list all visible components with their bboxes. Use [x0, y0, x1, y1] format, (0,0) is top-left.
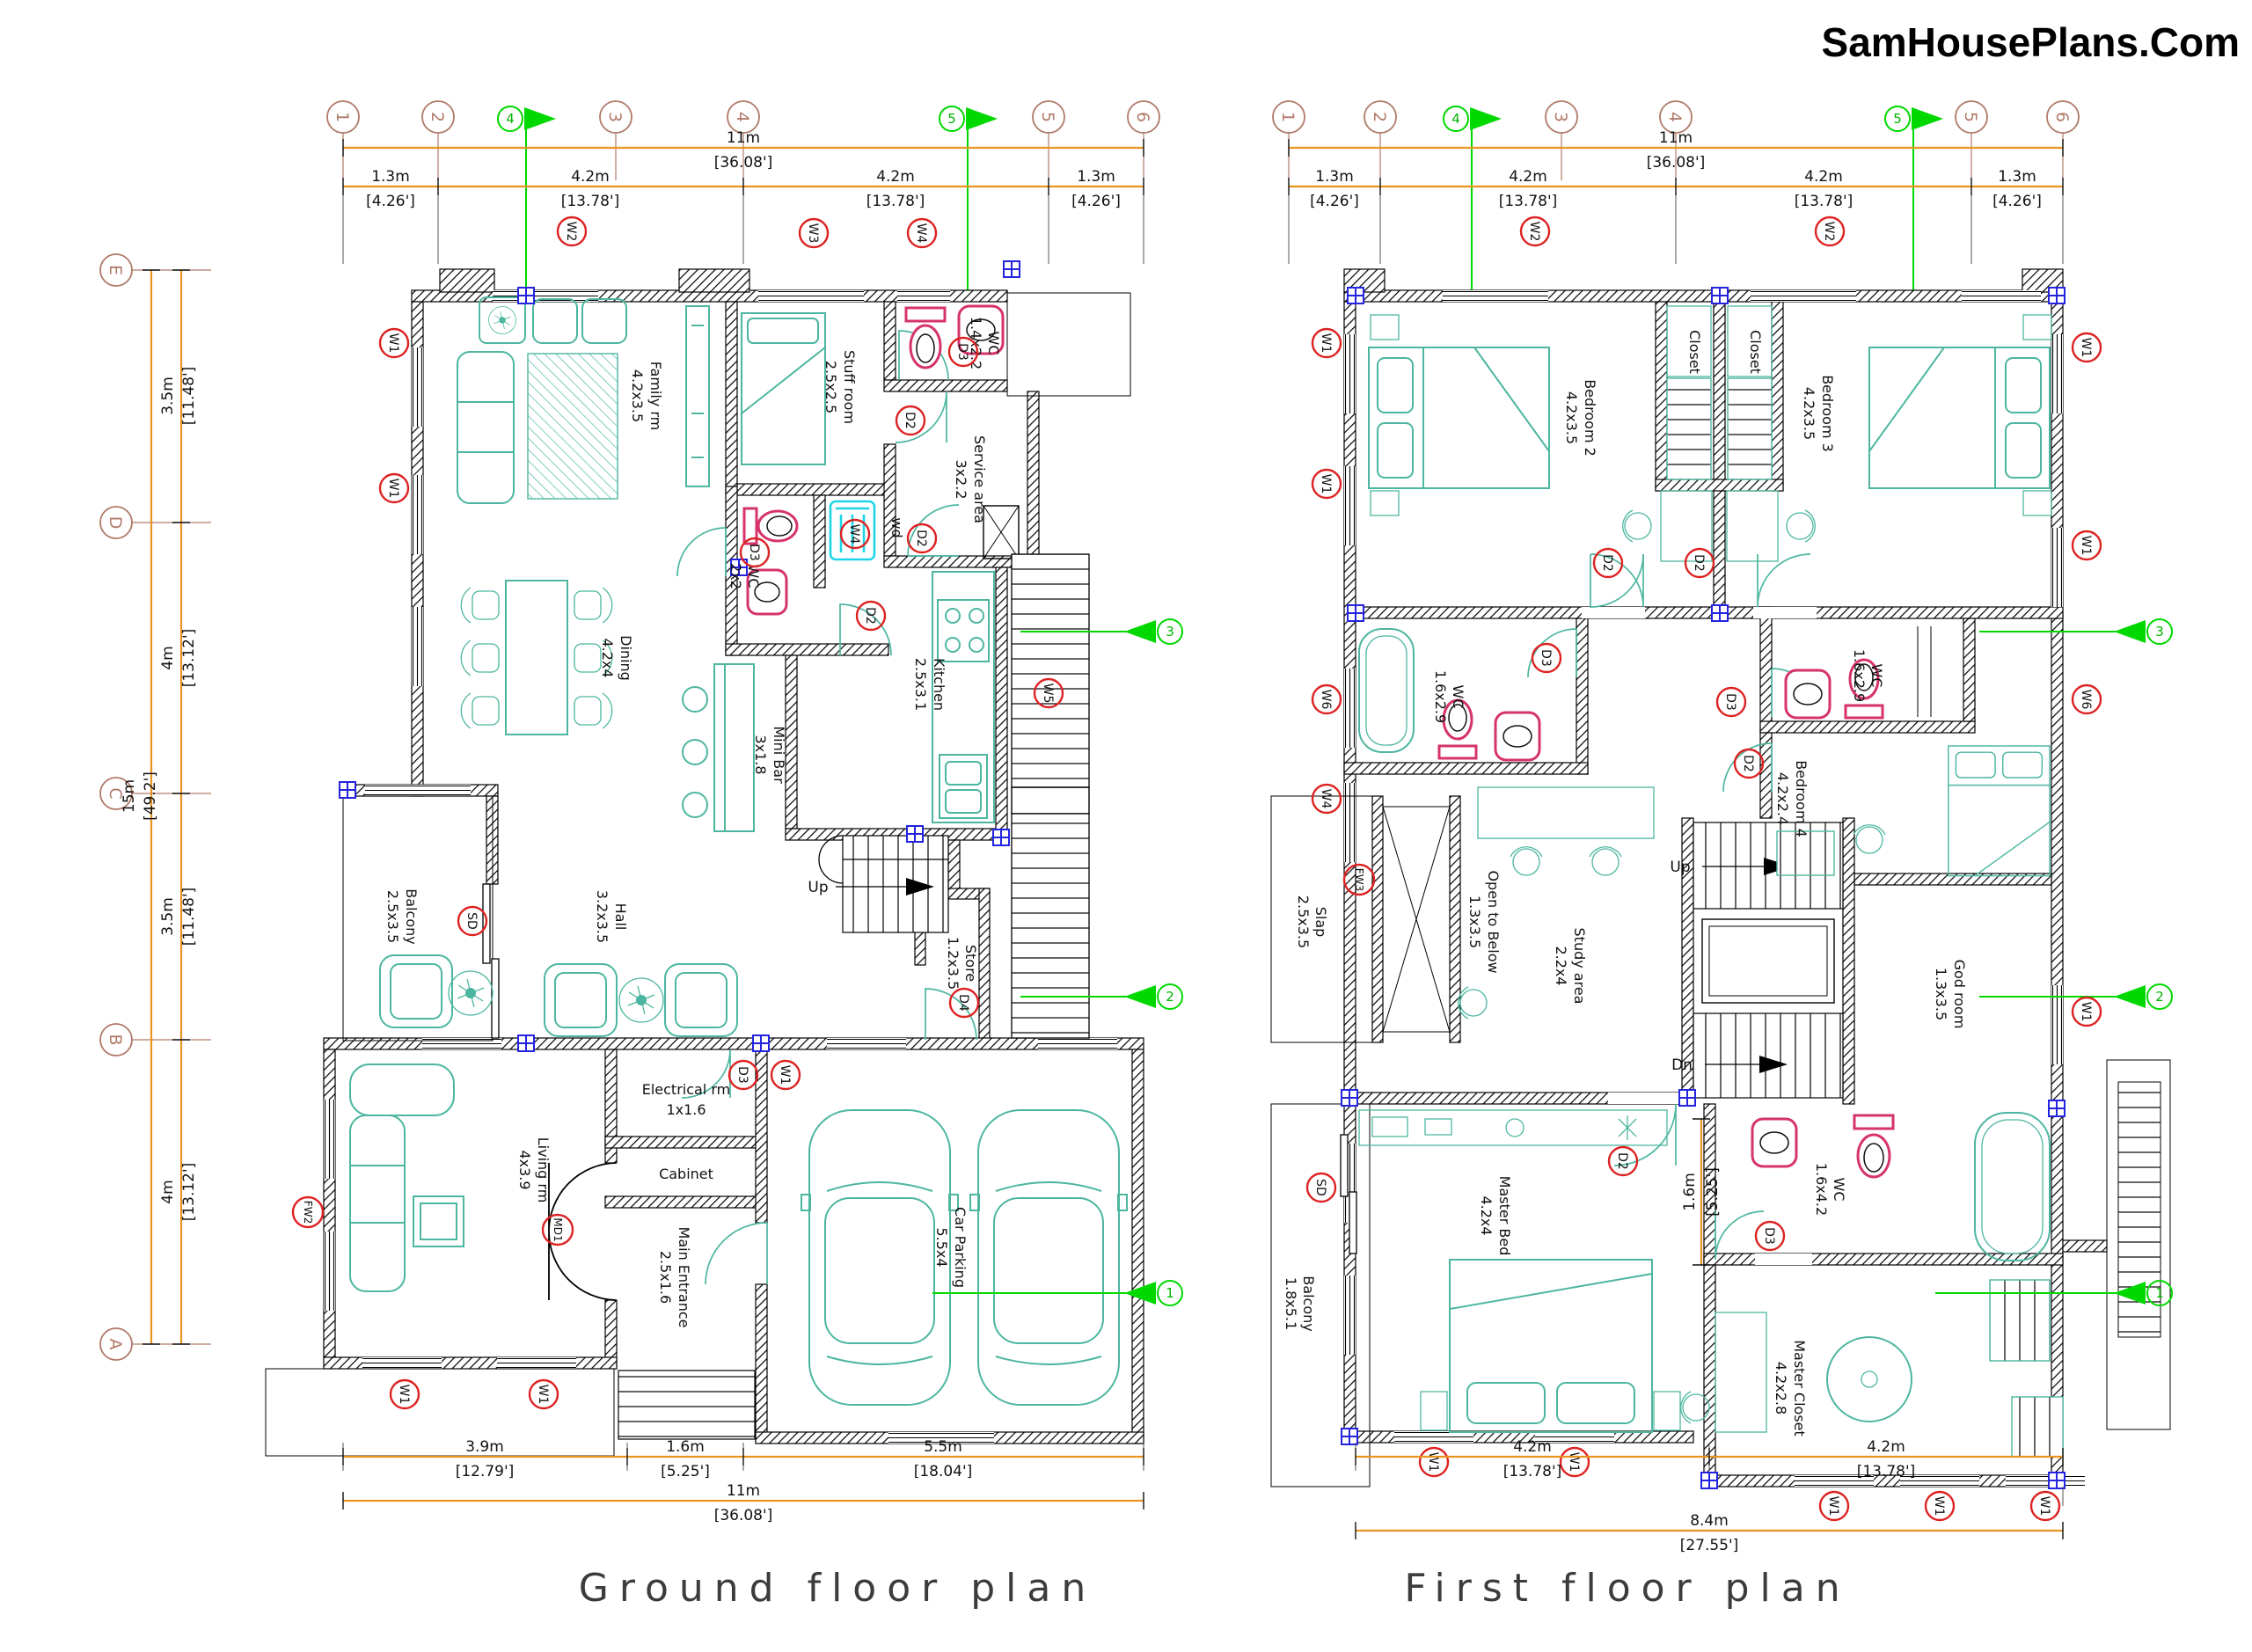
- svg-text:W5: W5: [1041, 683, 1055, 704]
- first-bed2: [1369, 347, 1549, 488]
- marker-w1: W1: [1312, 470, 1341, 498]
- svg-text:W1: W1: [2079, 1002, 2093, 1022]
- svg-text:[4.26']: [4.26']: [366, 193, 415, 210]
- svg-text:[13.12']: [13.12']: [180, 1163, 198, 1222]
- svg-text:W6: W6: [1319, 690, 1333, 710]
- svg-text:2: 2: [1370, 112, 1389, 122]
- svg-text:1.6m: 1.6m: [666, 1438, 705, 1456]
- svg-text:W4: W4: [847, 524, 861, 545]
- svg-text:6: 6: [2052, 112, 2072, 122]
- marker-w2: W2: [1816, 217, 1844, 245]
- ground-bottom-dimensions: 3.9m[12.79'] 1.6m[5.25'] 5.5m[18.04'] 11…: [343, 1438, 1144, 1524]
- svg-text:W1: W1: [386, 479, 400, 499]
- svg-text:W1: W1: [386, 333, 400, 354]
- first-section-flag-3: 3: [2114, 619, 2172, 644]
- svg-text:3.2x3.5: 3.2x3.5: [594, 890, 611, 943]
- svg-text:W1: W1: [1932, 1496, 1946, 1517]
- svg-text:Stuff room: Stuff room: [841, 350, 858, 424]
- svg-text:Store: Store: [962, 945, 979, 982]
- first-bed4-furniture: [1777, 746, 2050, 876]
- svg-text:1.2x3.5: 1.2x3.5: [945, 937, 961, 990]
- svg-text:3x1.8: 3x1.8: [752, 735, 769, 774]
- svg-text:[11.48']: [11.48']: [180, 367, 198, 426]
- svg-text:Master Closet: Master Closet: [1791, 1340, 1808, 1436]
- marker-d2: D2: [908, 524, 936, 552]
- ground-up-label: Up: [808, 879, 828, 896]
- first-closetm-furniture: [1681, 1280, 2063, 1457]
- marker-sd: SD: [458, 907, 486, 935]
- svg-text:D3: D3: [747, 544, 761, 561]
- svg-text:[18.04']: [18.04']: [914, 1463, 973, 1480]
- first-master-furniture: [1359, 1110, 1680, 1432]
- svg-text:A: A: [106, 1339, 125, 1350]
- svg-text:5: 5: [947, 111, 956, 127]
- marker-d2: D2: [1735, 749, 1763, 778]
- svg-text:FW2: FW2: [302, 1201, 314, 1224]
- first-title: First floor plan: [1404, 1566, 1850, 1611]
- svg-text:1: 1: [333, 112, 352, 122]
- svg-text:W1: W1: [1319, 333, 1333, 354]
- svg-text:11m: 11m: [1659, 129, 1693, 147]
- ground-side-stairs: [1012, 554, 1089, 1038]
- svg-text:4x3.9: 4x3.9: [516, 1150, 533, 1189]
- svg-text:Bedroom 2: Bedroom 2: [1582, 379, 1598, 457]
- ground-living-furniture: [350, 1064, 464, 1291]
- ground-stuff-furniture: [742, 313, 825, 464]
- svg-text:WC: WC: [985, 332, 1002, 355]
- marker-w1: W1: [1926, 1492, 1954, 1520]
- svg-text:3.9m: 3.9m: [465, 1438, 504, 1456]
- svg-text:Hall: Hall: [612, 903, 629, 931]
- ground-section-flag-2: 2: [1124, 984, 1182, 1009]
- marker-w1: W1: [2073, 531, 2101, 559]
- svg-text:WC: WC: [1450, 685, 1466, 709]
- svg-text:D2: D2: [1615, 1152, 1629, 1170]
- marker-w4: W4: [1312, 785, 1341, 813]
- svg-text:1: 1: [1278, 112, 1298, 122]
- marker-w1: W1: [1561, 1448, 1589, 1476]
- svg-text:Balcony: Balcony: [1300, 1276, 1317, 1331]
- ground-hall-furniture: [380, 955, 737, 1036]
- svg-text:4.2x4: 4.2x4: [599, 638, 616, 677]
- svg-text:[13.78']: [13.78']: [561, 193, 620, 210]
- svg-text:1.6x2.9: 1.6x2.9: [1851, 649, 1868, 702]
- svg-text:Car Parking: Car Parking: [952, 1207, 969, 1288]
- svg-text:WC: WC: [1831, 1178, 1847, 1202]
- svg-text:4.2x3.5: 4.2x3.5: [1563, 391, 1580, 444]
- marker-md1: MD1: [543, 1215, 573, 1245]
- floorplan-sheet: SamHousePlans.Com 1 2 3 4 5 6 4 5 11m [3…: [0, 0, 2252, 1652]
- svg-text:W1: W1: [1319, 474, 1333, 494]
- svg-text:W2: W2: [1822, 222, 1836, 242]
- svg-text:2.5x2.5: 2.5x2.5: [823, 361, 839, 413]
- ground-title: Ground floor plan: [579, 1566, 1096, 1611]
- marker-w4: W4: [908, 219, 936, 247]
- svg-text:4.2x2.4: 4.2x2.4: [1774, 772, 1791, 825]
- svg-text:11m: 11m: [727, 129, 760, 147]
- marker-d2: D2: [1594, 549, 1622, 577]
- svg-text:Dining: Dining: [618, 635, 634, 681]
- svg-text:MD1: MD1: [552, 1217, 564, 1241]
- first-dn-label: Dn: [1671, 1056, 1693, 1074]
- first-up-label: Up: [1670, 859, 1690, 876]
- svg-text:[4.26']: [4.26']: [1071, 193, 1121, 210]
- svg-text:FW3: FW3: [1353, 868, 1365, 891]
- ground-porches: [266, 293, 1130, 1456]
- marker-d2: D2: [857, 602, 885, 630]
- svg-text:2.5x3.5: 2.5x3.5: [384, 890, 401, 943]
- svg-text:[13.78']: [13.78']: [1857, 1463, 1916, 1480]
- svg-text:3.5m: 3.5m: [159, 376, 177, 415]
- svg-text:B: B: [106, 1034, 125, 1045]
- svg-text:D3: D3: [1723, 693, 1737, 711]
- site-brand: SamHousePlans.Com: [1822, 19, 2240, 65]
- svg-text:5: 5: [1893, 111, 1902, 127]
- svg-text:[11.48']: [11.48']: [180, 888, 198, 947]
- svg-text:W1: W1: [778, 1065, 792, 1085]
- svg-text:4m: 4m: [159, 646, 177, 669]
- svg-text:SD: SD: [1313, 1179, 1327, 1196]
- marker-w6: W6: [2073, 685, 2101, 713]
- svg-text:Closet: Closet: [1747, 330, 1764, 374]
- svg-text:1.8x5.1: 1.8x5.1: [1283, 1277, 1299, 1330]
- svg-text:1.3m: 1.3m: [1998, 168, 2036, 186]
- svg-text:Open to Below: Open to Below: [1485, 870, 1502, 973]
- marker-w1: W1: [391, 1380, 419, 1408]
- svg-text:[27.55']: [27.55']: [1680, 1537, 1739, 1554]
- svg-text:[49.2']: [49.2']: [142, 771, 159, 821]
- svg-text:Closet: Closet: [1686, 330, 1703, 374]
- svg-text:5: 5: [1961, 112, 1980, 122]
- ground-section-flag-3: 3: [1124, 619, 1182, 644]
- svg-text:2: 2: [2155, 989, 2164, 1005]
- marker-w1: W1: [1820, 1492, 1848, 1520]
- svg-text:4.2x4: 4.2x4: [1478, 1195, 1495, 1235]
- svg-text:Bedroom 3: Bedroom 3: [1819, 375, 1836, 452]
- first-bottom-dimensions: 4.2m[13.78'] 4.2m[13.78'] 8.4m[27.55']: [1356, 1438, 2063, 1554]
- svg-text:D2: D2: [863, 607, 877, 625]
- svg-text:SD: SD: [464, 912, 479, 930]
- svg-text:Family rm: Family rm: [647, 362, 664, 430]
- ground-wc2-fixtures: [744, 501, 874, 614]
- svg-text:[13.78']: [13.78']: [866, 193, 925, 210]
- svg-text:3: 3: [1166, 624, 1174, 640]
- svg-text:2: 2: [428, 112, 447, 122]
- svg-text:[5.25']: [5.25']: [661, 1463, 710, 1480]
- svg-text:D3: D3: [1762, 1227, 1776, 1245]
- svg-text:1.6m: 1.6m: [1681, 1173, 1699, 1211]
- marker-sd: SD: [1307, 1173, 1335, 1202]
- first-section-flag-2: 2: [2114, 984, 2172, 1009]
- svg-text:4.2m: 4.2m: [1867, 1438, 1905, 1456]
- svg-text:2x2: 2x2: [728, 563, 744, 589]
- svg-text:D3: D3: [955, 343, 969, 361]
- svg-text:2: 2: [1166, 989, 1174, 1005]
- ground-car-2: [970, 1110, 1127, 1405]
- first-bed3: [1869, 347, 2050, 488]
- svg-text:2.5x1.6: 2.5x1.6: [657, 1251, 674, 1304]
- svg-text:E: E: [106, 265, 125, 275]
- floorplan-drawing: SamHousePlans.Com 1 2 3 4 5 6 4 5 11m [3…: [0, 0, 2252, 1652]
- marker-d3: D3: [1532, 644, 1561, 672]
- svg-text:D: D: [106, 516, 125, 530]
- svg-text:5: 5: [1038, 112, 1057, 122]
- svg-text:[5.25']: [5.25']: [1704, 1167, 1722, 1217]
- svg-text:1.6x2.9: 1.6x2.9: [1432, 670, 1449, 723]
- svg-text:3: 3: [1551, 112, 1570, 122]
- svg-text:4.2x3.5: 4.2x3.5: [629, 369, 646, 422]
- svg-text:4.2m: 4.2m: [876, 168, 915, 186]
- svg-text:3: 3: [2155, 624, 2164, 640]
- ground-family-furniture: [457, 297, 709, 503]
- svg-text:2.5x3.5: 2.5x3.5: [1295, 895, 1312, 948]
- svg-text:[36.08']: [36.08']: [1647, 154, 1706, 172]
- svg-text:D3: D3: [1539, 649, 1553, 667]
- marker-fw2: FW2: [293, 1197, 323, 1227]
- svg-text:W1: W1: [2037, 1496, 2051, 1517]
- marker-d2: D2: [1609, 1147, 1637, 1175]
- svg-text:W1: W1: [2079, 338, 2093, 358]
- svg-text:4: 4: [733, 112, 752, 122]
- ground-stairs: Up: [808, 836, 948, 932]
- svg-text:Mini Bar: Mini Bar: [771, 726, 787, 784]
- svg-text:D2: D2: [1692, 554, 1706, 572]
- svg-text:Kitchen: Kitchen: [931, 658, 947, 711]
- marker-w1: W1: [771, 1061, 800, 1089]
- svg-text:[4.26']: [4.26']: [1992, 193, 2042, 210]
- svg-text:Slap: Slap: [1312, 907, 1329, 938]
- svg-text:D3: D3: [735, 1066, 749, 1084]
- svg-text:W2: W2: [564, 222, 578, 242]
- svg-text:1x1.6: 1x1.6: [666, 1101, 706, 1118]
- svg-text:W1: W1: [1567, 1452, 1581, 1473]
- first-plan: 1 2 3 4 5 6 4 5 11m [36.08'] 1.3m[4.26']…: [1271, 101, 2172, 1611]
- svg-text:1.3x3.5: 1.3x3.5: [1466, 895, 1483, 948]
- svg-text:D2: D2: [1600, 554, 1614, 572]
- svg-text:W2: W2: [1527, 222, 1541, 242]
- svg-text:W1: W1: [397, 1385, 411, 1405]
- svg-text:1.3m: 1.3m: [1077, 168, 1115, 186]
- svg-text:Balcony: Balcony: [403, 888, 420, 944]
- marker-d3: D3: [1756, 1222, 1784, 1250]
- marker-w1: W1: [2073, 998, 2101, 1026]
- svg-text:D2: D2: [914, 530, 928, 547]
- svg-text:W1: W1: [1826, 1496, 1840, 1517]
- svg-text:Electrical rm: Electrical rm: [642, 1081, 731, 1098]
- svg-text:5.5m: 5.5m: [924, 1438, 962, 1456]
- marker-w1: W1: [380, 329, 408, 357]
- svg-text:[13.78']: [13.78']: [1499, 193, 1558, 210]
- svg-text:4.2x2.8: 4.2x2.8: [1773, 1362, 1789, 1414]
- ground-room-labels: Family rm4.2x3.5 Stuff room2.5x2.5 WC1.4…: [384, 317, 1002, 1328]
- svg-text:1: 1: [1166, 1285, 1174, 1301]
- marker-w2: W2: [558, 217, 586, 245]
- svg-text:4.2m: 4.2m: [1509, 168, 1547, 186]
- marker-d2: D2: [896, 406, 925, 435]
- svg-text:W1: W1: [2079, 536, 2093, 556]
- svg-text:1.6x4.2: 1.6x4.2: [1813, 1163, 1830, 1216]
- svg-text:4.2m: 4.2m: [1513, 1438, 1552, 1456]
- svg-text:[36.08']: [36.08']: [714, 154, 773, 172]
- svg-text:Bedroom 4: Bedroom 4: [1793, 760, 1810, 837]
- svg-text:[13.78']: [13.78']: [1795, 193, 1854, 210]
- svg-text:W1: W1: [1426, 1452, 1440, 1473]
- svg-text:5.5x4: 5.5x4: [933, 1227, 950, 1267]
- svg-text:1.3m: 1.3m: [1315, 168, 1354, 186]
- svg-text:Living rm: Living rm: [535, 1137, 552, 1203]
- svg-text:2.5x3.1: 2.5x3.1: [912, 658, 929, 711]
- svg-text:[13.12']: [13.12']: [180, 629, 198, 688]
- svg-text:4: 4: [1451, 111, 1460, 127]
- svg-text:[12.79']: [12.79']: [456, 1463, 515, 1480]
- ground-plan: 1 2 3 4 5 6 4 5 11m [36.08'] 1.3m[4.26']…: [100, 101, 1182, 1611]
- svg-text:3x2.2: 3x2.2: [953, 459, 969, 499]
- svg-text:D2: D2: [903, 412, 917, 429]
- marker-d3: D3: [729, 1061, 757, 1089]
- svg-text:4.2m: 4.2m: [1804, 168, 1843, 186]
- marker-w1: W1: [2073, 333, 2101, 362]
- ground-left-dimensions: 15m [49.2'] 3.5m [11.48'] 4m [13.12'] 3.…: [121, 270, 198, 1344]
- marker-d3: D3: [1717, 688, 1745, 716]
- marker-w2: W2: [1521, 217, 1549, 245]
- marker-w1: W1: [2031, 1492, 2059, 1520]
- svg-text:[4.26']: [4.26']: [1310, 193, 1359, 210]
- first-masterwc-fixtures: [1752, 1113, 2050, 1261]
- svg-text:4: 4: [506, 111, 515, 127]
- svg-text:8.4m: 8.4m: [1690, 1512, 1729, 1530]
- svg-text:1.3x3.5: 1.3x3.5: [1933, 968, 1949, 1020]
- ground-windows: [324, 290, 1117, 1444]
- svg-text:2.2x4: 2.2x4: [1553, 946, 1569, 985]
- svg-text:Cabinet: Cabinet: [659, 1166, 713, 1182]
- svg-text:4: 4: [1665, 112, 1685, 122]
- svg-text:Service area: Service area: [971, 435, 988, 523]
- svg-text:W4: W4: [914, 223, 928, 244]
- svg-text:3.5m: 3.5m: [159, 897, 177, 936]
- svg-text:WC: WC: [745, 565, 762, 588]
- svg-text:God room: God room: [1951, 960, 1968, 1029]
- svg-text:4.2m: 4.2m: [571, 168, 610, 186]
- svg-text:4m: 4m: [159, 1180, 177, 1203]
- svg-text:W6: W6: [2079, 690, 2093, 710]
- marker-w6: W6: [1312, 685, 1341, 713]
- marker-w1: W1: [1312, 329, 1341, 357]
- svg-text:W4: W4: [1319, 789, 1333, 809]
- svg-text:4.2x3.5: 4.2x3.5: [1801, 387, 1817, 440]
- marker-d2: D2: [1685, 549, 1714, 577]
- svg-text:W1: W1: [536, 1385, 550, 1405]
- svg-text:3: 3: [605, 112, 625, 122]
- svg-text:[13.78']: [13.78']: [1503, 1463, 1562, 1480]
- svg-text:1.3m: 1.3m: [371, 168, 410, 186]
- marker-w3: W3: [800, 219, 828, 247]
- svg-text:1: 1: [2155, 1285, 2164, 1301]
- svg-text:Main Entrance: Main Entrance: [676, 1227, 692, 1328]
- svg-text:11m: 11m: [727, 1482, 760, 1500]
- ground-dining-furniture: [461, 581, 611, 735]
- svg-text:[36.08']: [36.08']: [714, 1507, 773, 1524]
- svg-text:6: 6: [1133, 112, 1152, 122]
- svg-text:W3: W3: [806, 223, 820, 244]
- marker-w1: W1: [380, 474, 408, 502]
- svg-text:D4: D4: [956, 994, 970, 1012]
- marker-d4: D4: [950, 989, 978, 1017]
- svg-text:D2: D2: [1741, 755, 1755, 772]
- svg-text:Study area: Study area: [1571, 928, 1588, 1005]
- marker-w1: W1: [1420, 1448, 1448, 1476]
- svg-text:15m: 15m: [121, 779, 138, 813]
- svg-text:Master Bed: Master Bed: [1496, 1176, 1513, 1256]
- svg-text:WC: WC: [1868, 664, 1885, 688]
- svg-text:wd: wd: [888, 517, 905, 537]
- marker-w1: W1: [530, 1380, 558, 1408]
